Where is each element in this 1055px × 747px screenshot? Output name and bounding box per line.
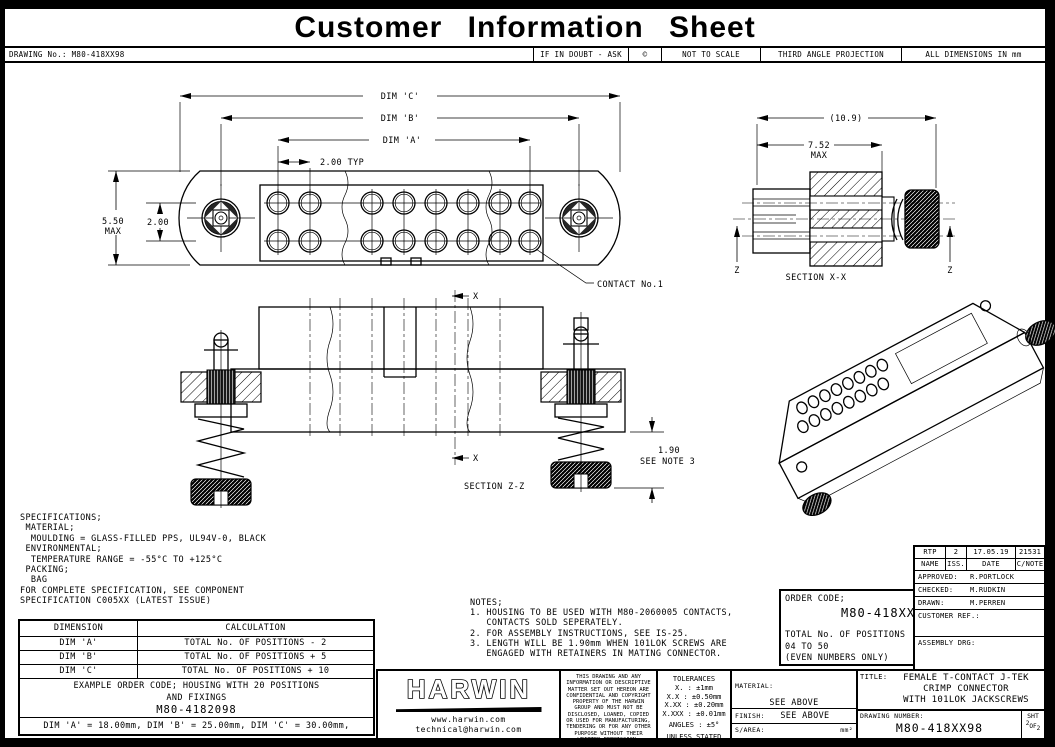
positions-label: TOTAL No. OF POSITIONS bbox=[785, 630, 905, 640]
dim-a-cell: DIM 'A' bbox=[20, 637, 138, 650]
harwin-logo-cell: HARWIN www.harwin.com technical@harwin.c… bbox=[378, 671, 559, 738]
notes-block: NOTES; 1. HOUSING TO BE USED WITH M80-20… bbox=[470, 598, 732, 659]
depth-max: MAX bbox=[811, 151, 828, 161]
checked-row: CHECKED: M.RUDKIN bbox=[915, 584, 1044, 597]
finish-value: SEE ABOVE bbox=[780, 711, 829, 721]
example-dimensions: DIM 'A' = 18.00mm, DIM 'B' = 25.00mm, DI… bbox=[20, 717, 373, 734]
assembly-drg-cell: ASSEMBLY DRG: bbox=[915, 637, 1044, 670]
section-xx-label: SECTION X-X bbox=[786, 273, 847, 283]
drawn-label: DRAWN: bbox=[918, 597, 970, 609]
z-arrow-label-right: Z bbox=[947, 266, 953, 276]
section-xx-view: Z Z (10.9) 7.52 MAX SECTION X-X bbox=[733, 111, 958, 283]
harwin-logo: HARWIN bbox=[384, 675, 554, 703]
example-order-title: EXAMPLE ORDER CODE; HOUSING WITH 20 POSI… bbox=[20, 679, 373, 691]
rev-h-issue: ISS. bbox=[945, 559, 966, 570]
dim-c-calc-cell: TOTAL No. OF POSITIONS + 10 bbox=[138, 665, 373, 678]
drawing-number-label: DRAWING NUMBER: bbox=[860, 712, 1019, 720]
drawing-title: FEMALE T-CONTACT J-TEK CRIMP CONNECTOR W… bbox=[890, 673, 1042, 707]
rev-issue: 2 bbox=[945, 547, 966, 558]
depth-value: 7.52 bbox=[808, 141, 830, 151]
rev-name: RTP bbox=[915, 547, 945, 558]
drawing-number-value: M80-418XX98 bbox=[860, 721, 1019, 735]
rev-h-date: DATE bbox=[966, 559, 1015, 570]
contact-no1-label: CONTACT No.1 bbox=[597, 280, 663, 290]
revision-header-row: NAME ISS. DATE C/NOTE bbox=[915, 559, 1044, 571]
sheet-of: OF bbox=[1029, 723, 1036, 730]
protrusion-value: 1.90 bbox=[658, 446, 680, 456]
dimension-table: DIMENSION CALCULATION DIM 'A' TOTAL No. … bbox=[18, 619, 375, 736]
logo-swoosh bbox=[396, 707, 542, 712]
checked-value: M.RUDKIN bbox=[970, 584, 1044, 596]
approved-value: R.PORTLOCK bbox=[970, 571, 1044, 583]
checked-label: CHECKED: bbox=[918, 584, 970, 596]
jackscrew-hole-left bbox=[187, 184, 255, 252]
positions-note: (EVEN NUMBERS ONLY) bbox=[785, 653, 889, 663]
tolerances-cell: TOLERANCES X. : ±1mm X.X : ±0.50mm X.XX … bbox=[656, 671, 730, 738]
x-arrow-label-top: X bbox=[473, 292, 479, 302]
sheet-total: 2 bbox=[1037, 725, 1041, 732]
customer-ref-cell: CUSTOMER REF.: bbox=[915, 610, 1044, 637]
title-block: HARWIN www.harwin.com technical@harwin.c… bbox=[376, 669, 1046, 740]
overall-depth-value: (10.9) bbox=[829, 114, 862, 124]
col-header-calculation: CALCULATION bbox=[138, 621, 373, 636]
front-view: DIM 'C' DIM 'B' DIM 'A' 2.00 TYP 5.50 MA… bbox=[102, 89, 663, 290]
pitch-label: 2.00 TYP bbox=[320, 158, 364, 168]
sheet-cell: SHT 2OF2 bbox=[1021, 711, 1044, 738]
jackscrew-left bbox=[181, 330, 261, 508]
positions-range: 04 TO 50 bbox=[785, 642, 829, 652]
z-arrow-label-left: Z bbox=[734, 266, 740, 276]
example-order-code: M80-4182098 bbox=[20, 703, 373, 717]
material-cell: MATERIAL: SEE ABOVE FINISH: SEE ABOVE S/… bbox=[730, 671, 856, 738]
title-line-1: FEMALE T-CONTACT J-TEK bbox=[890, 673, 1042, 684]
dim-b-label: DIM 'B' bbox=[381, 114, 420, 124]
harwin-wordmark: HARWIN bbox=[406, 675, 530, 703]
email-link: technical@harwin.com bbox=[378, 725, 559, 735]
dim-c-cell: DIM 'C' bbox=[20, 665, 138, 678]
example-order-title2: AND FIXINGS bbox=[20, 691, 373, 703]
dim-c-label: DIM 'C' bbox=[381, 92, 420, 102]
revision-row: RTP 2 17.05.19 21531 bbox=[915, 547, 1044, 559]
height-max: MAX bbox=[105, 227, 122, 237]
tolerances-title: TOLERANCES bbox=[658, 674, 730, 684]
rev-change-note: 21531 bbox=[1015, 547, 1044, 558]
drawn-value: M.PERREN bbox=[970, 597, 1044, 609]
title-line-2: CRIMP CONNECTOR bbox=[890, 684, 1042, 695]
dim-b-calc-cell: TOTAL No. OF POSITIONS + 5 bbox=[138, 651, 373, 664]
jackscrew-right bbox=[541, 312, 621, 492]
rev-h-name: NAME bbox=[915, 559, 945, 570]
material-value: SEE ABOVE bbox=[735, 698, 853, 708]
height-value: 5.50 bbox=[102, 217, 124, 227]
dim-a-label: DIM 'A' bbox=[383, 136, 422, 146]
approved-row: APPROVED: R.PORTLOCK bbox=[915, 571, 1044, 584]
revision-approval-block: RTP 2 17.05.19 21531 NAME ISS. DATE C/NO… bbox=[913, 545, 1046, 672]
table-row: DIM 'A' TOTAL No. OF POSITIONS - 2 bbox=[20, 637, 373, 651]
title-line-3: WITH 101LOK JACKSCREWS bbox=[890, 695, 1042, 706]
section-zz-label: SECTION Z-Z bbox=[464, 482, 525, 492]
section-zz-view: X X SECTION Z-Z 1.90 SEE NOTE 3 bbox=[181, 290, 695, 508]
specifications-text: SPECIFICATIONS; MATERIAL; MOULDING = GLA… bbox=[20, 513, 266, 607]
unless-stated: UNLESS STATED bbox=[658, 733, 730, 742]
x-arrow-label-bottom: X bbox=[473, 454, 479, 464]
finish-label: FINISH: bbox=[735, 712, 765, 720]
table-row: DIM 'C' TOTAL No. OF POSITIONS + 10 bbox=[20, 665, 373, 679]
protrusion-note: SEE NOTE 3 bbox=[640, 457, 695, 467]
title-label: TITLE: bbox=[860, 673, 890, 707]
jackscrew-hole-right bbox=[545, 184, 613, 252]
dim-b-cell: DIM 'B' bbox=[20, 651, 138, 664]
title-cell: TITLE: FEMALE T-CONTACT J-TEK CRIMP CONN… bbox=[856, 671, 1044, 738]
approved-label: APPROVED: bbox=[918, 571, 970, 583]
angles-tolerance: ANGLES : ±5° bbox=[658, 721, 730, 730]
contact-holes bbox=[264, 189, 541, 255]
sarea-unit: mm² bbox=[840, 726, 853, 736]
col-header-dimension: DIMENSION bbox=[20, 621, 138, 636]
rev-h-cnote: C/NOTE bbox=[1015, 559, 1044, 570]
tolerances-values: X. : ±1mm X.X : ±0.50mm X.XX : ±0.20mm X… bbox=[658, 684, 730, 718]
dim-a-calc-cell: TOTAL No. OF POSITIONS - 2 bbox=[138, 637, 373, 650]
dimension-table-header: DIMENSION CALCULATION bbox=[20, 621, 373, 637]
sarea-label: S/AREA: bbox=[735, 726, 765, 736]
table-row: DIM 'B' TOTAL No. OF POSITIONS + 5 bbox=[20, 651, 373, 665]
drawn-row: DRAWN: M.PERREN bbox=[915, 597, 1044, 610]
notes-text: NOTES; 1. HOUSING TO BE USED WITH M80-20… bbox=[470, 598, 732, 659]
rev-date: 17.05.19 bbox=[966, 547, 1015, 558]
material-label: MATERIAL: bbox=[735, 682, 773, 690]
website-link: www.harwin.com bbox=[378, 715, 559, 725]
sheet-label: SHT bbox=[1022, 712, 1044, 720]
specifications-block: SPECIFICATIONS; MATERIAL; MOULDING = GLA… bbox=[20, 513, 266, 607]
confidentiality-notice: THIS DRAWING AND ANY INFORMATION OR DESC… bbox=[559, 671, 656, 738]
row-pitch-value: 2.00 bbox=[147, 218, 169, 228]
isometric-view bbox=[755, 274, 1055, 520]
order-code-label: ORDER CODE; bbox=[785, 594, 845, 604]
